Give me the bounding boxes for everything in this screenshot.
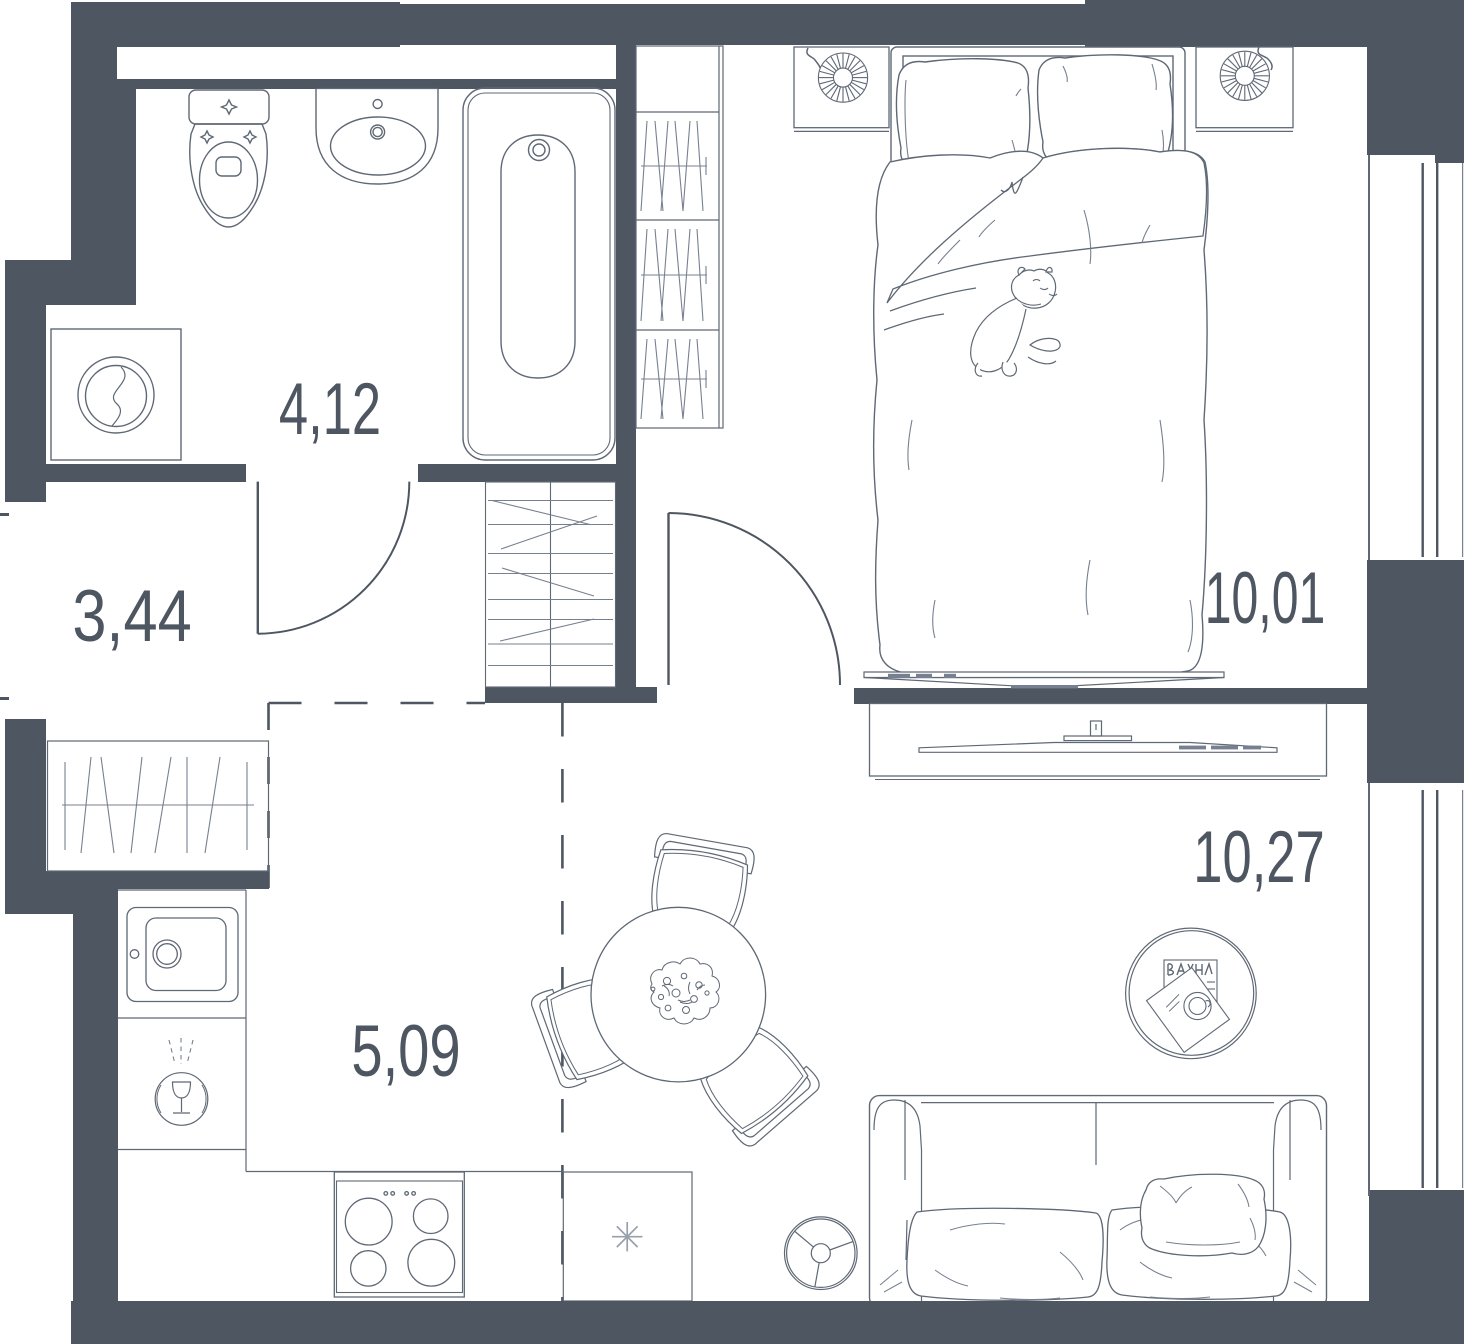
svg-text:10,01: 10,01: [1205, 558, 1326, 639]
svg-text:4,12: 4,12: [279, 369, 381, 450]
svg-text:5,09: 5,09: [351, 1010, 460, 1092]
svg-text:3,44: 3,44: [72, 576, 191, 657]
svg-text:10,27: 10,27: [1193, 817, 1325, 898]
